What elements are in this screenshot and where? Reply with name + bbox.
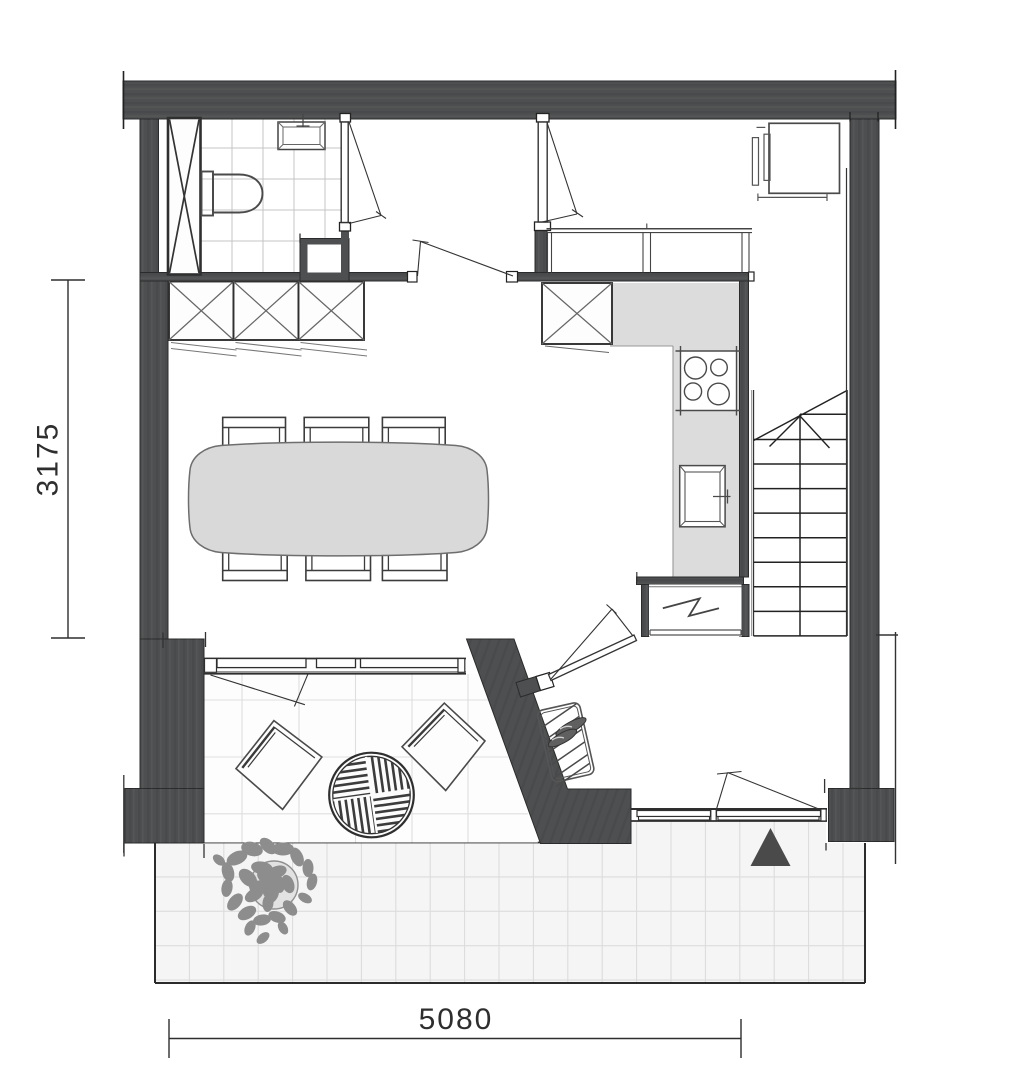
svg-text:3175: 3175: [32, 422, 65, 497]
svg-text:5080: 5080: [419, 1003, 494, 1036]
